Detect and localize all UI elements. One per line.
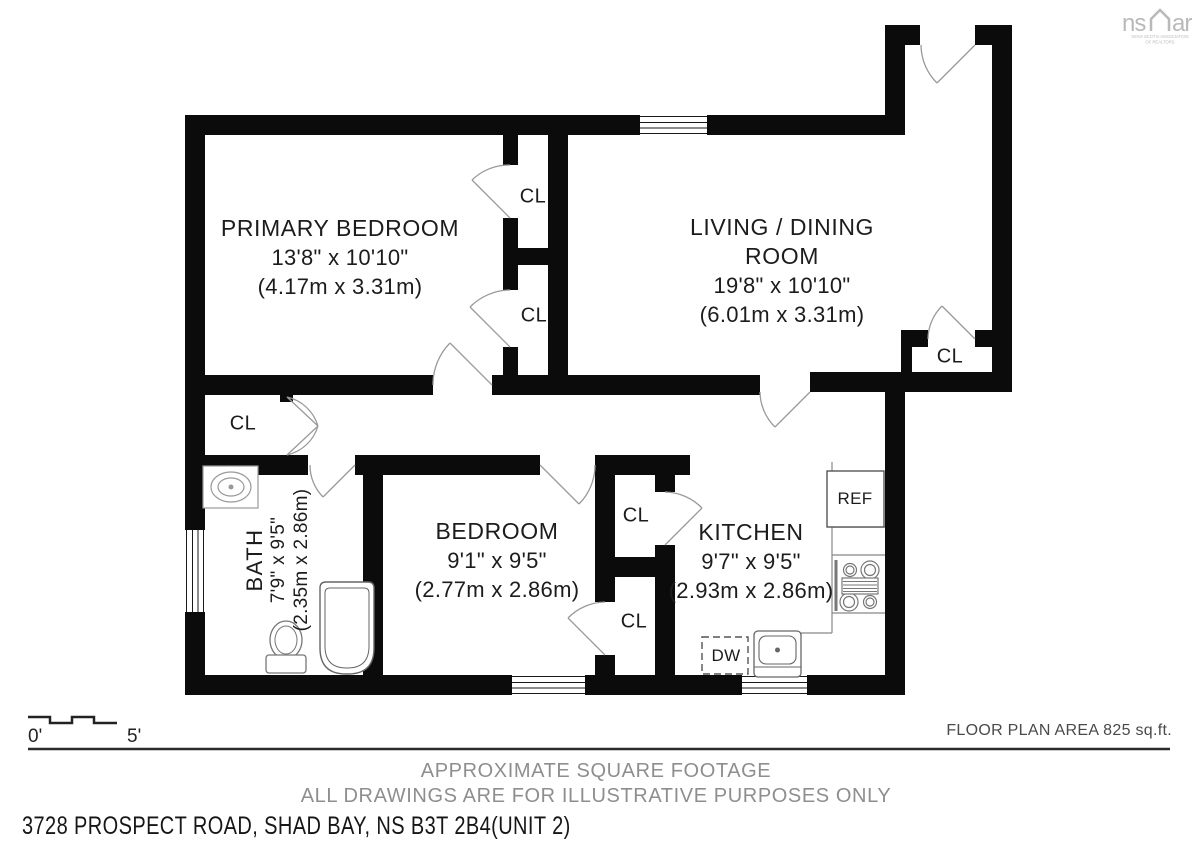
room-name: KITCHEN [669,518,834,547]
closet-label-2: CL [521,305,548,328]
nsar-logo: ns ar NOVA SCOTIA ASSOCIATION OF REALTOR… [1122,10,1192,45]
floor-plan-canvas: ns ar NOVA SCOTIA ASSOCIATION OF REALTOR… [0,0,1200,848]
floor-plan-area-note: FLOOR PLAN AREA 825 sq.ft. [946,722,1172,740]
window-bath-left [187,530,204,612]
room-name-line1: LIVING / DINING [690,213,874,242]
scale-end-label: 5' [127,726,141,748]
room-name: BEDROOM [415,517,580,546]
window-top [640,117,707,134]
fridge-label: REF [838,489,873,509]
logo-text-left: ns [1122,10,1146,37]
room-dims-imperial: 13'8" x 10'10" [221,243,459,272]
closet-label-hall: CL [230,413,257,436]
room-dims-imperial: 19'8" x 10'10" [690,271,874,300]
floor-plan-drawing: ns ar NOVA SCOTIA ASSOCIATION OF REALTOR… [0,0,1200,848]
window-bedroom-bottom [512,677,585,694]
room-label-bedroom: BEDROOM 9'1" x 9'5" (2.77m x 2.86m) [415,517,580,604]
window-kitchen-bottom [742,677,807,694]
room-label-kitchen: KITCHEN 9'7" x 9'5" (2.93m x 2.86m) [669,518,834,605]
hall-closet-doors-arc [287,397,318,455]
room-label-primary-bedroom: PRIMARY BEDROOM 13'8" x 10'10" (4.17m x … [221,214,459,301]
room-label-living-dining: LIVING / DINING ROOM 19'8" x 10'10" (6.0… [690,213,874,329]
scale-bar [28,717,117,723]
closet-label-living: CL [937,346,964,369]
room-name-line2: ROOM [690,242,874,271]
closet1-door-arc [472,165,510,218]
stove-icon [836,560,879,611]
room-name: PRIMARY BEDROOM [221,214,459,243]
bath-door-arc [310,465,355,497]
disclaimer-line-1: APPROXIMATE SQUARE FOOTAGE [421,760,771,783]
closet-label-1: CL [520,186,547,209]
bathtub-icon [320,582,374,674]
kitchen-door-arc [760,392,810,427]
room-dims-metric: (6.01m x 3.31m) [690,300,874,329]
closet-label-mid-bottom: CL [621,611,648,634]
kitchen-sink-icon [754,631,801,677]
room-dims-metric: (2.93m x 2.86m) [669,576,834,605]
dishwasher-label: DW [712,646,741,666]
scale-start-label: 0' [28,726,42,748]
closet2-door-arc [470,290,510,347]
room-dims-imperial: 7'9" x 9'5" [267,489,290,632]
living-closet-door-arc [928,306,975,339]
logo-text-right: ar [1172,10,1192,37]
logo-subtext-1: NOVA SCOTIA ASSOCIATION [1131,34,1188,39]
room-dims-metric: (2.77m x 2.86m) [415,575,580,604]
room-name: BATH [243,489,267,632]
property-address: 3728 PROSPECT ROAD, SHAD BAY, NS B3T 2B4… [22,812,571,841]
mid-closet-bottom-door-arc [568,602,605,655]
logo-house-icon [1151,10,1169,31]
logo-subtext-2: OF REALTORS [1145,40,1174,45]
bedroom-door-arc [540,465,595,504]
room-dims-imperial: 9'7" x 9'5" [669,547,834,576]
room-dims-imperial: 9'1" x 9'5" [415,546,580,575]
room-dims-metric: (2.35m x 2.86m) [290,489,313,632]
room-label-bath: BATH 7'9" x 9'5" (2.35m x 2.86m) [243,489,313,632]
primary-bedroom-door-arc [433,343,492,385]
disclaimer-line-2: ALL DRAWINGS ARE FOR ILLUSTRATIVE PURPOS… [301,785,892,808]
closet-label-mid-top: CL [623,505,650,528]
room-dims-metric: (4.17m x 3.31m) [221,272,459,301]
entry-door-arc [921,45,975,83]
